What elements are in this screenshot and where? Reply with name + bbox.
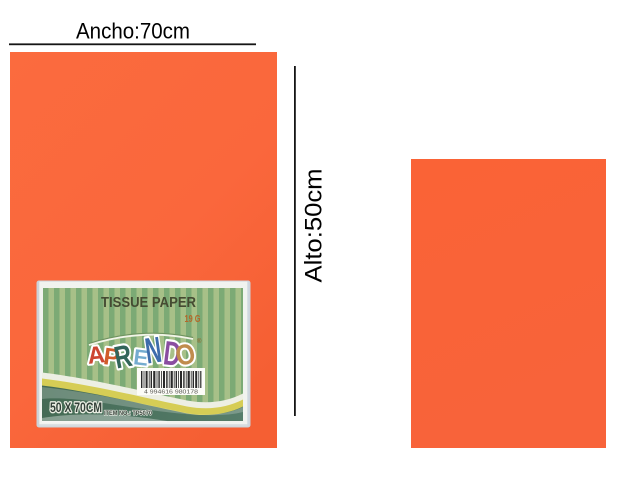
svg-text:Ancho:70cm: Ancho:70cm <box>76 19 190 44</box>
svg-text:TISSUE PAPER: TISSUE PAPER <box>101 295 196 311</box>
svg-text:Alto:50cm: Alto:50cm <box>301 169 328 283</box>
svg-text:4 994616 980178: 4 994616 980178 <box>144 389 198 395</box>
svg-text:ITEM NO.: TP5070: ITEM NO.: TP5070 <box>104 410 152 417</box>
svg-text:19 G: 19 G <box>185 314 201 325</box>
svg-text:50 X 70CM: 50 X 70CM <box>50 399 102 415</box>
svg-text:®: ® <box>197 338 202 345</box>
